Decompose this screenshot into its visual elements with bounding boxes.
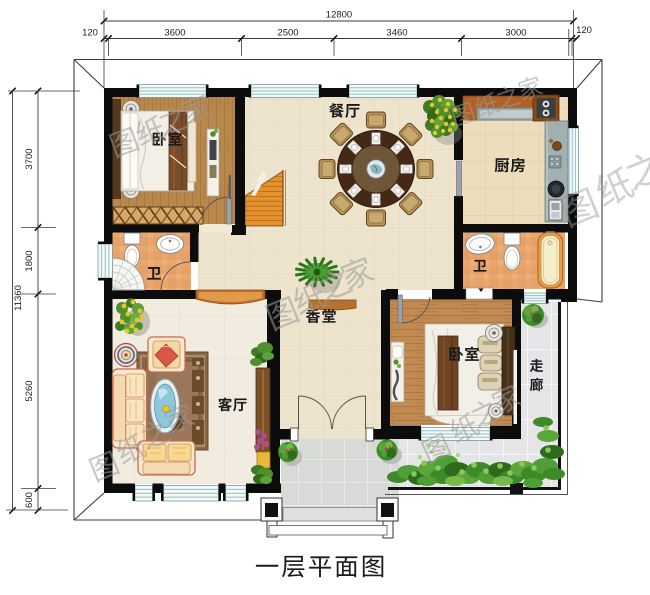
svg-text:120: 120 (576, 25, 592, 36)
svg-text:2500: 2500 (277, 28, 298, 39)
svg-text:600: 600 (24, 492, 35, 508)
svg-text:3460: 3460 (386, 28, 407, 39)
svg-text:120: 120 (82, 28, 98, 39)
svg-text:3600: 3600 (164, 28, 185, 39)
svg-text:3000: 3000 (505, 28, 526, 39)
svg-text:3700: 3700 (24, 148, 35, 169)
svg-text:1800: 1800 (24, 250, 35, 271)
svg-text:12800: 12800 (326, 10, 352, 21)
svg-text:11360: 11360 (13, 285, 24, 311)
svg-text:5260: 5260 (24, 380, 35, 401)
